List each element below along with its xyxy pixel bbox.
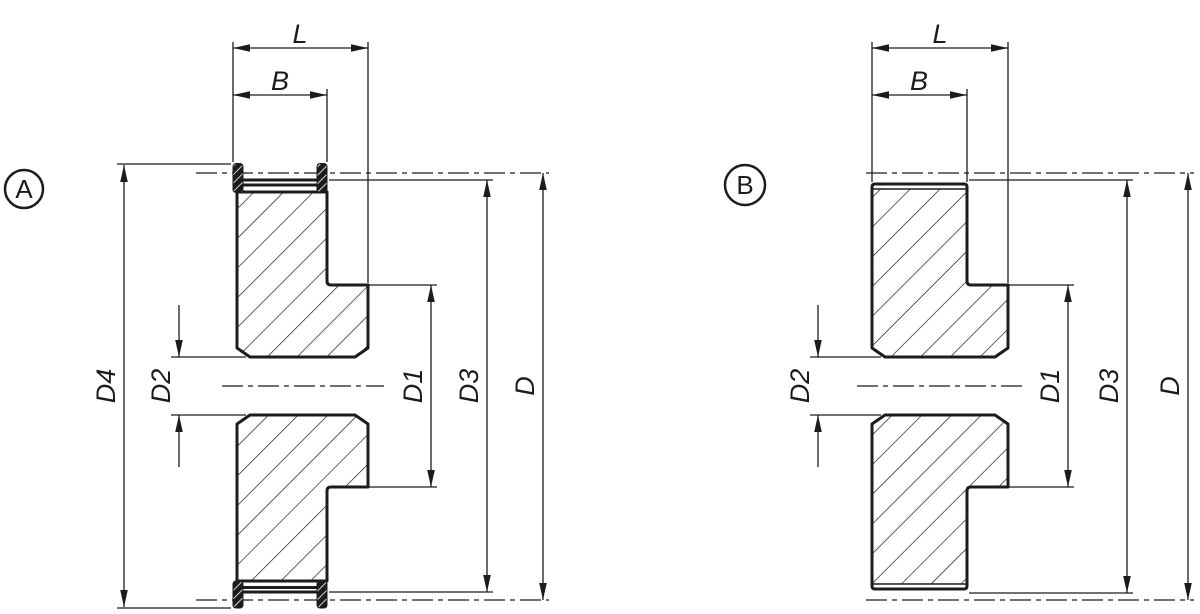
dim-D-b: D [1155, 173, 1188, 600]
dim-label-D3: D3 [1094, 369, 1124, 404]
dim-D3-a: D3 [454, 180, 487, 592]
dim-B-b: B [872, 66, 967, 96]
dim-D4-a: D4 [91, 165, 124, 607]
dim-label-D: D [510, 376, 540, 396]
dim-D1-a: D1 [398, 285, 431, 487]
dim-D-a: D [510, 173, 543, 600]
dim-label-D1: D1 [1035, 369, 1065, 404]
dim-label-L: L [932, 19, 947, 49]
dim-D2-b: D2 [785, 305, 818, 467]
dim-label-B: B [271, 66, 289, 96]
dim-label-D4: D4 [91, 369, 121, 404]
dim-label-D1: D1 [398, 369, 428, 404]
pulley-view-b: B L B D2 D1 [725, 19, 1194, 600]
view-a-balloon-label: A [15, 174, 33, 204]
dim-L-b: L [872, 19, 1008, 49]
dim-D3-b: D3 [1094, 180, 1127, 593]
dim-D2-a: D2 [146, 305, 179, 467]
dim-label-D2: D2 [785, 369, 815, 404]
upper-half-hatch-b [872, 189, 1008, 357]
flange-bottom-left [233, 581, 243, 608]
dim-label-B: B [910, 66, 928, 96]
flange-top-left [233, 164, 243, 193]
lower-half-hatch-b [872, 415, 1008, 584]
pulley-view-a: A L B D4 [5, 19, 549, 608]
technical-drawing-canvas: A L B D4 [0, 0, 1200, 614]
dim-label-D3: D3 [454, 369, 484, 404]
flange-top-right [317, 164, 327, 193]
dim-label-D2: D2 [146, 369, 176, 404]
dim-B-a: B [233, 66, 327, 96]
dim-label-L: L [292, 19, 307, 49]
pulley-technical-drawing: A L B D4 [0, 0, 1200, 614]
dim-D1-b: D1 [1035, 285, 1068, 487]
dim-L-a: L [233, 19, 368, 49]
dim-label-D: D [1155, 376, 1185, 396]
view-b-balloon-label: B [736, 170, 753, 200]
lower-half-section-a [237, 415, 368, 581]
upper-half-section-a [237, 192, 368, 357]
flange-bottom-right [317, 581, 327, 608]
